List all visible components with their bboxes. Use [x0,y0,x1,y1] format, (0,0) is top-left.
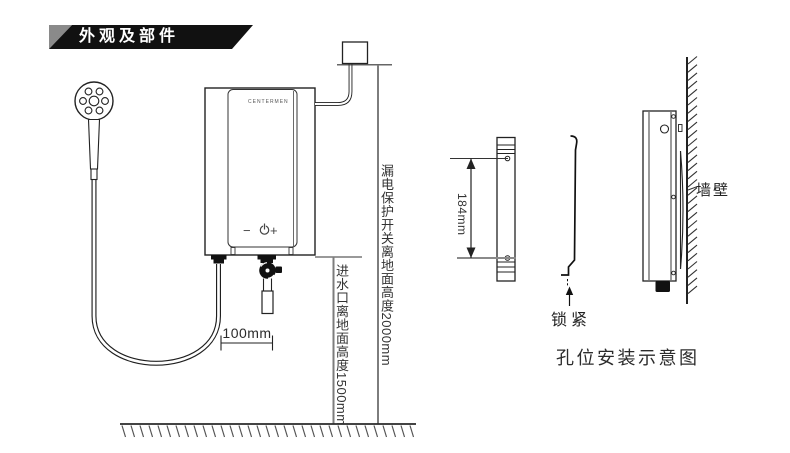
plus-control-label: + [270,223,278,238]
bracket-side-profile [561,136,577,287]
bracket-dimension-label: 184mm [456,193,468,236]
power-cord [315,64,351,105]
inlet-pipe [262,279,273,314]
side-view-unit [643,111,683,292]
shower-handle [89,120,100,180]
brand-label: CENTERMEN [248,99,289,105]
ground-line [120,424,416,437]
shower-head [75,82,113,120]
breaker-box [343,42,368,64]
minus-control-label: − [243,223,251,238]
heater-unit [205,88,315,255]
inlet-valve [258,255,283,279]
shower-hose [94,180,219,364]
bracket-front-view [497,138,515,282]
wall-hatching [688,57,697,294]
outlet-fitting [211,255,227,264]
outlet-distance-label: 100mm [220,325,274,341]
side-view-fitting [656,281,671,292]
inlet-height-label: 进水口离地面高度1500mm [335,264,348,426]
lock-arrow [566,287,573,307]
lock-label: 锁紧 [551,306,591,330]
side-view-hole [661,125,669,133]
breaker-height-label: 漏电保护开关离地面高度2000mm [380,164,393,366]
manual-page: 外观及部件 [0,0,790,453]
wall-label: 墙壁 [696,179,730,200]
install-diagram-caption: 孔位安装示意图 [556,344,700,370]
diagram-canvas [0,0,790,453]
ground-hatching [122,426,414,438]
